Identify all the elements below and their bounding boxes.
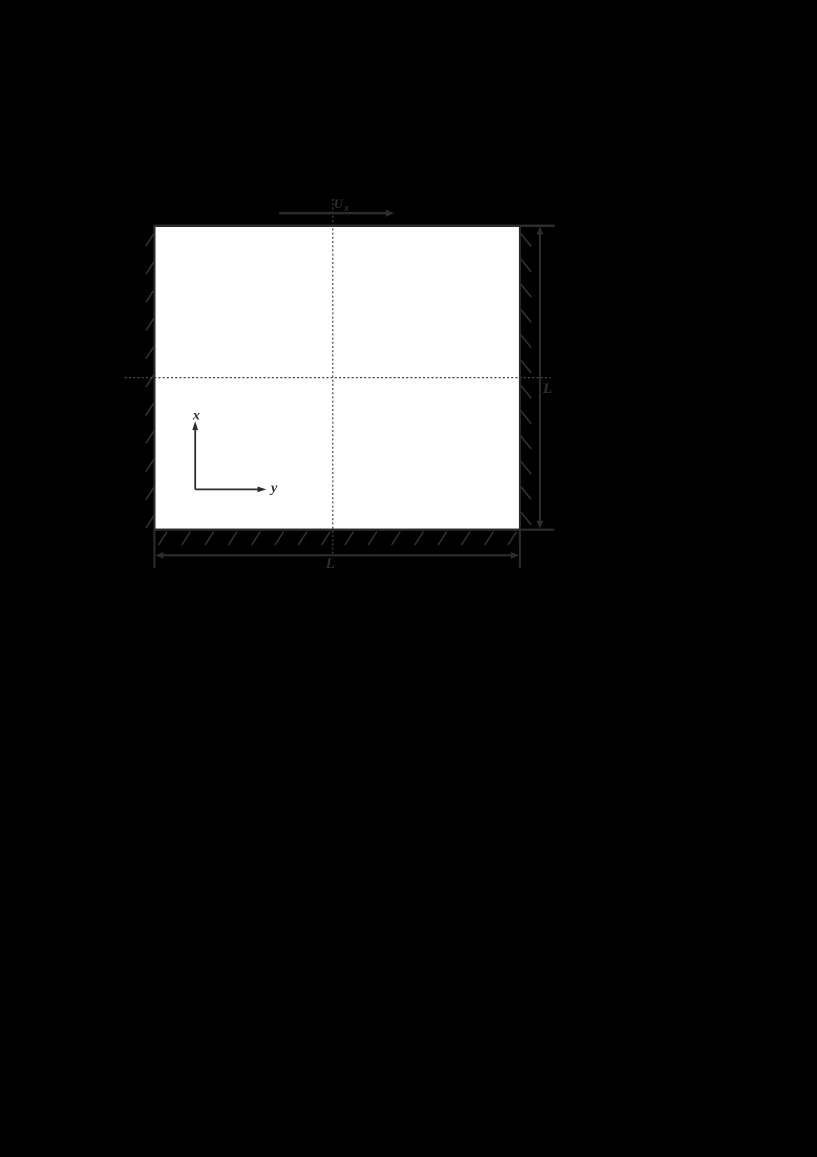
- svg-text:U: U: [334, 197, 344, 211]
- svg-text:L: L: [542, 381, 552, 397]
- svg-text:x: x: [192, 408, 200, 423]
- svg-text:L: L: [325, 556, 335, 572]
- svg-text:x: x: [343, 203, 349, 214]
- svg-text:y: y: [269, 481, 278, 496]
